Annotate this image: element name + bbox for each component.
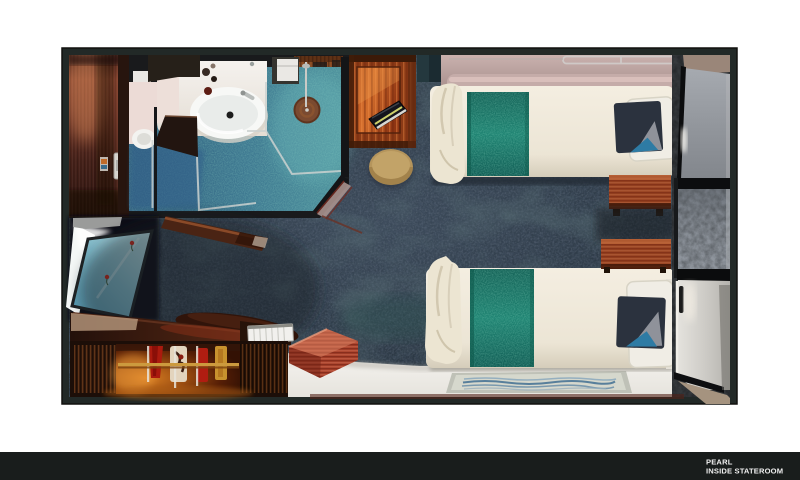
svg-text:PEARL: PEARL: [706, 458, 733, 467]
svg-text:INSIDE STATEROOM: INSIDE STATEROOM: [706, 467, 783, 476]
